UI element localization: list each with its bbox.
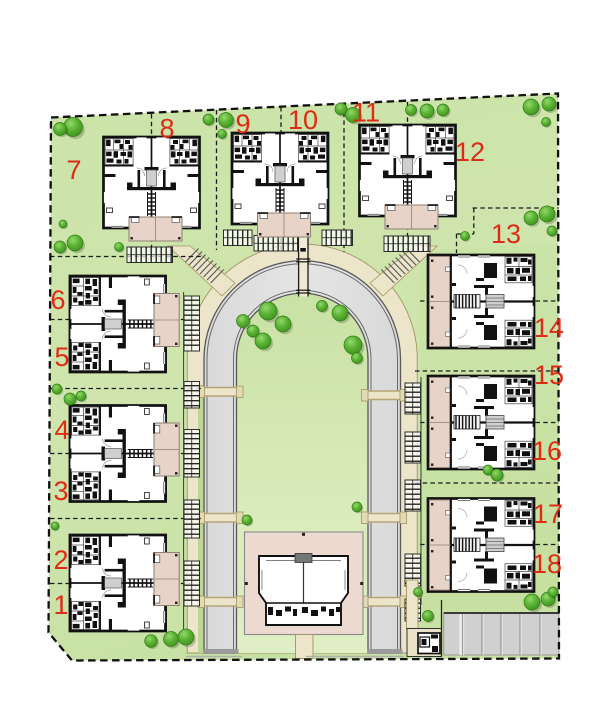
svg-text:9: 9 [235,109,250,139]
svg-text:5: 5 [54,342,69,372]
svg-text:17: 17 [533,499,563,529]
svg-text:14: 14 [534,313,564,343]
svg-text:13: 13 [491,219,521,249]
svg-text:18: 18 [532,549,562,579]
svg-text:1: 1 [53,590,68,620]
svg-text:8: 8 [159,114,174,144]
svg-text:7: 7 [66,155,81,185]
svg-text:6: 6 [50,285,65,315]
svg-text:2: 2 [53,545,68,575]
svg-text:11: 11 [352,98,380,128]
svg-text:16: 16 [532,436,562,466]
svg-text:12: 12 [455,137,485,167]
svg-text:10: 10 [288,105,318,135]
svg-text:4: 4 [54,415,69,445]
svg-text:3: 3 [53,476,68,506]
svg-text:15: 15 [534,360,564,390]
